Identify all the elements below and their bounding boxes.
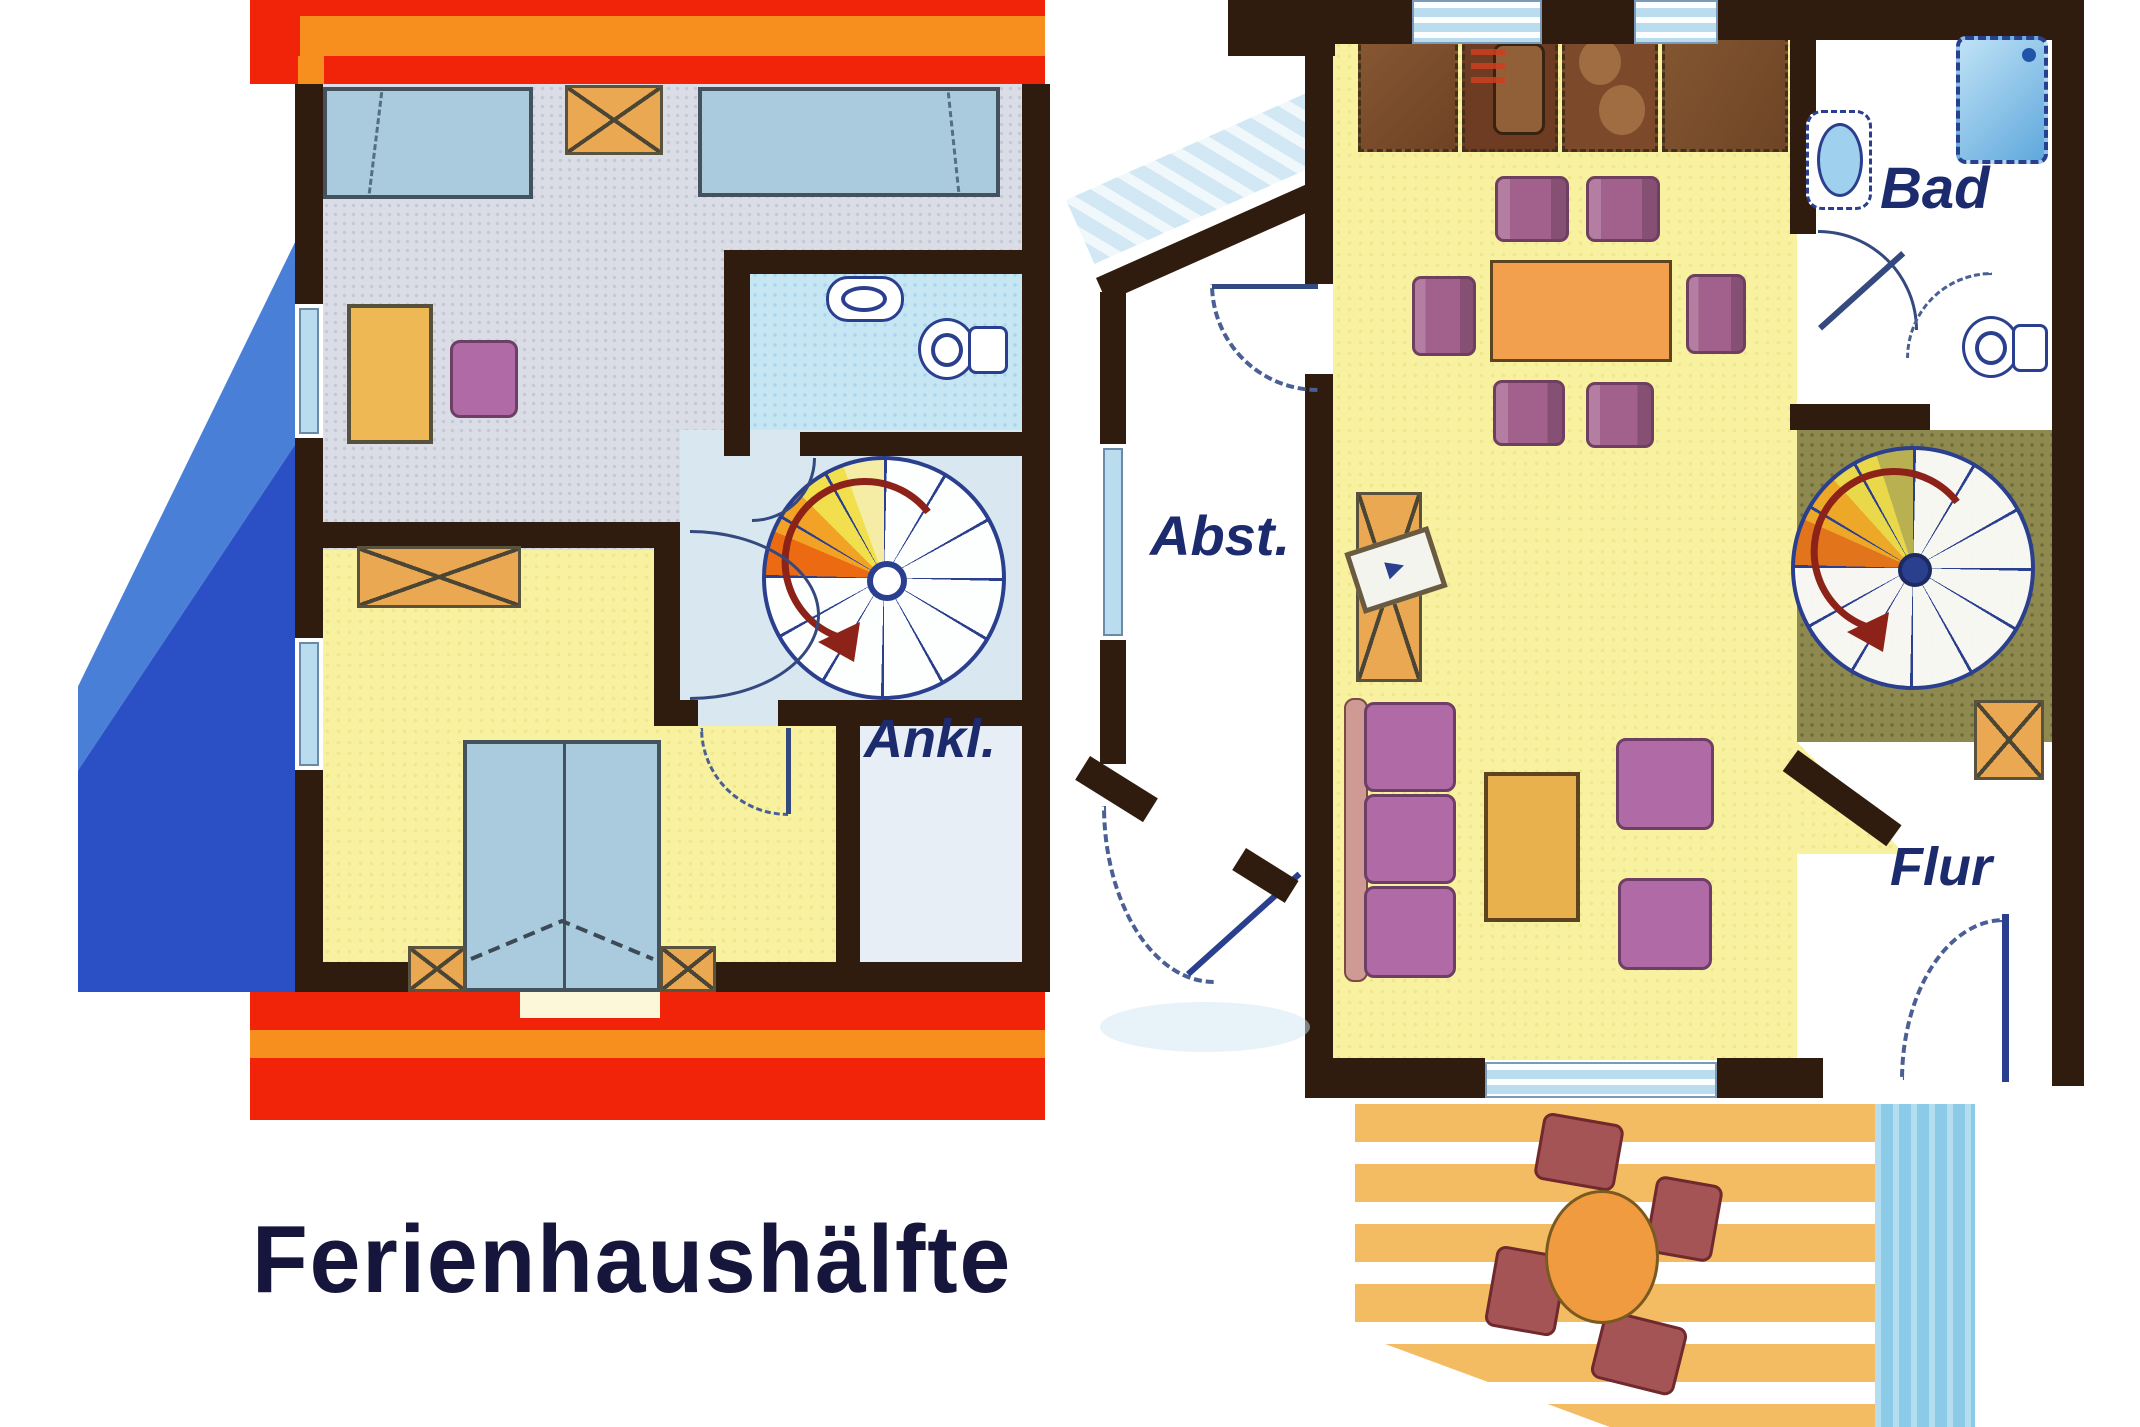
roof-band-bottom-orange [250,1030,1045,1060]
page-title: Ferienhaushälfte [252,1205,1012,1315]
tv-screen-mark [1384,557,1407,580]
toilet-upper-tank [968,326,1008,374]
upper-plan: Ankl. [0,0,1100,1200]
desk-chair [450,340,518,418]
hallway-label: Flur [1890,840,1992,894]
sink-ground-basin [1817,123,1863,197]
spiral-staircase-ground [1791,446,2035,690]
nightstand-left [408,946,466,992]
wall-left-mid [295,438,323,638]
storage-label: Abst. [1150,508,1290,564]
bed-double-blanket-line [467,744,657,988]
stair-hub-upper [867,561,907,601]
wardrobe-between-beds [565,85,663,155]
terrace-table [1545,1190,1659,1324]
dining-table [1490,260,1672,362]
wall-west-upper [1305,44,1333,284]
stair-side-cabinet [1974,700,2044,780]
toilet-upper-inner [931,333,963,367]
roof-band-top-orange-corner [298,56,324,84]
armchair-1 [1616,738,1714,830]
sink-upper [826,276,904,322]
roof-band-top-orange [300,16,1045,56]
desk [347,304,433,444]
bed-foot-strip [520,992,660,1018]
dining-chair-top-2 [1586,176,1660,242]
window-storage [1100,444,1126,640]
door-leaf-dressing [786,728,791,814]
shower-drain [2022,48,2036,62]
porch-ground-shading [1100,1002,1310,1052]
wall-bath-top [740,250,1022,274]
toilet-ground-inner [1975,331,2007,365]
wall-left-top [295,84,323,304]
dressing-room-label: Ankl. [864,712,996,766]
window-storage-glass [1103,448,1123,636]
wall-bath-left [724,250,750,456]
window-bottom [1485,1062,1717,1098]
wall-bottom-1 [1305,1058,1485,1098]
armchair-2 [1618,878,1712,970]
dresser [357,546,521,608]
wall-east [2052,0,2084,1086]
sofa-cushion-2 [1364,794,1456,884]
wall-bath-south-stub [1790,404,1930,430]
kitchen-sink-basin-2 [1599,85,1645,135]
dining-chair-right [1686,274,1746,354]
wall-left-bottom [295,770,323,992]
bathroom-label: Bad [1880,160,1990,218]
wall-west-lower [1305,374,1333,1098]
stair-hub-ground [1898,553,1932,587]
dining-chair-bottom-2 [1586,382,1654,448]
wall-hall-south-a [680,700,698,726]
wall-bedroom-divider-h [322,522,680,548]
door-leaf-hall-exit [2002,914,2009,1082]
wall-storage-left-bottom [1100,640,1126,764]
window-left-upper-glass [299,308,319,434]
wall-top-1 [1335,0,1412,44]
coffee-table [1484,772,1580,922]
wall-top-2 [1542,0,1634,44]
window-left-upper [295,304,323,438]
toilet-ground-tank [2012,324,2048,372]
kitchen-sink-basin-1 [1579,39,1621,85]
wall-top-3 [1718,0,2084,40]
terrace-chair-north [1533,1111,1626,1192]
sofa-cushion-1 [1364,702,1456,792]
bed-single-1 [323,87,533,199]
window-top-1 [1412,0,1542,44]
door-leaf-storage [1212,284,1318,289]
nightstand-right [660,946,716,992]
dining-chair-bottom-1 [1493,380,1565,446]
window-left-lower [295,638,323,770]
wall-bath-bottom [800,432,1022,456]
sofa-cushion-3 [1364,886,1456,978]
sink-upper-basin [841,286,887,312]
wall-right-upper-plan [1022,84,1050,992]
roof-band-bottom-red2 [250,1058,1045,1120]
bed-double [463,740,661,992]
wall-storage-left-top [1100,292,1126,444]
window-top-2 [1634,0,1718,44]
dining-chair-left [1412,276,1476,356]
gable-shadow [78,228,302,992]
water-edge [1875,1104,1975,1427]
floorplan-canvas: Ankl. Abst. [0,0,2140,1427]
dining-chair-top-1 [1495,176,1569,242]
wall-dressing-left [836,726,860,962]
sink-ground [1806,110,1872,210]
shower [1956,36,2048,164]
window-left-lower-glass [299,642,319,766]
wall-bedroom-divider-v [654,522,680,726]
wall-bottom-2 [1717,1058,1823,1098]
